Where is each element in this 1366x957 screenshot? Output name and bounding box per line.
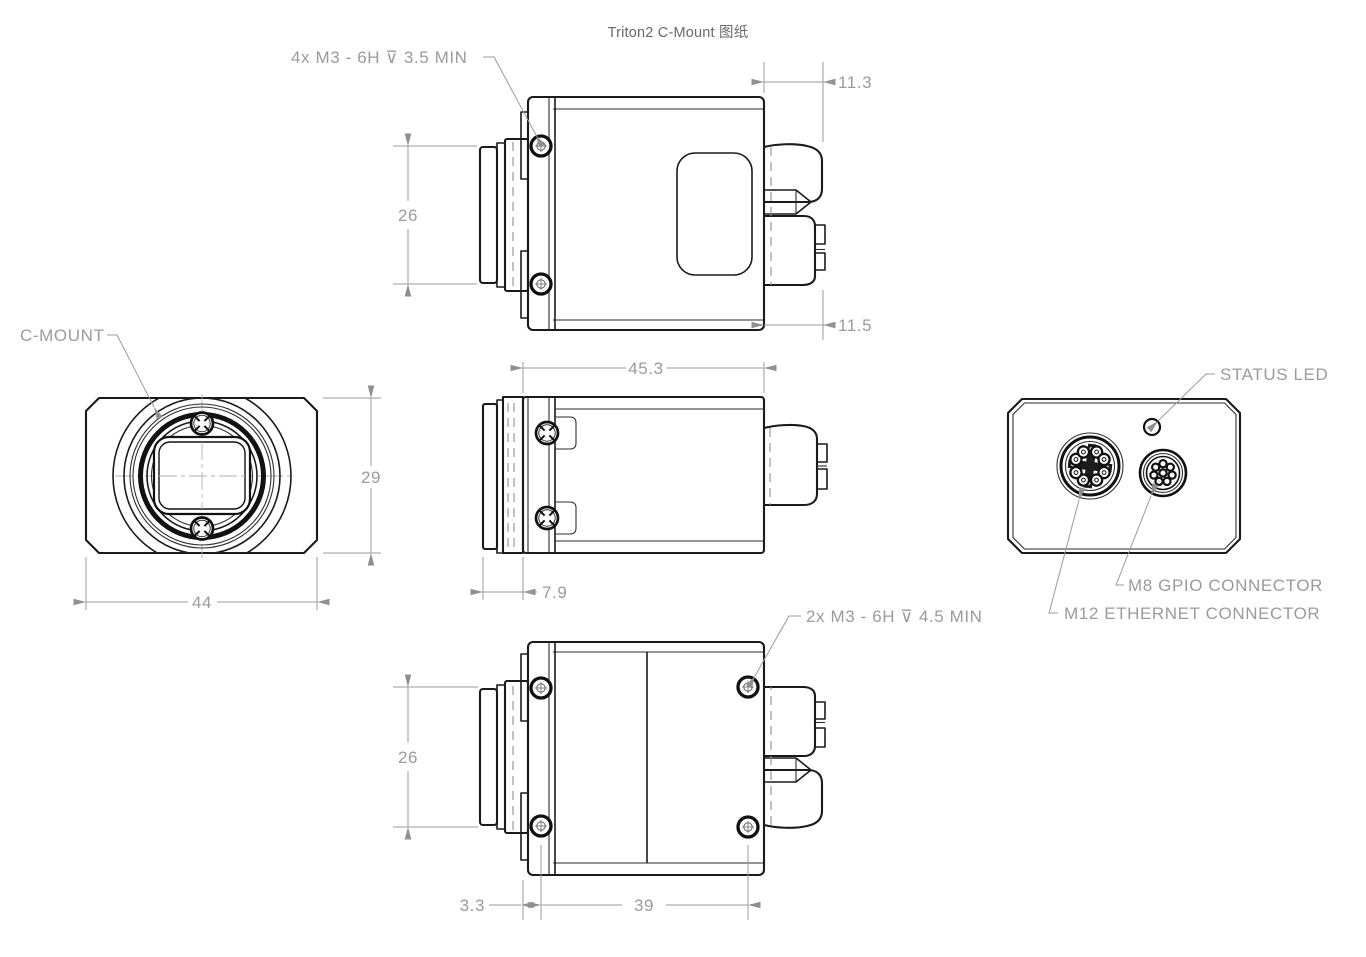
svg-text:26: 26: [398, 748, 418, 767]
phillips-screw: [536, 422, 558, 444]
svg-text:39: 39: [634, 896, 654, 915]
dim-side-45-3: 45.3: [523, 359, 764, 393]
dim-bottom-39: 39: [541, 845, 748, 920]
svg-text:3.3: 3.3: [460, 896, 485, 915]
bottom-view: 2x M3 - 6H ⊽ 4.5 MIN 26 3.3 39: [393, 607, 983, 920]
svg-text:44: 44: [192, 593, 212, 612]
svg-text:7.9: 7.9: [542, 583, 567, 602]
dim-side-7-9: 7.9: [483, 557, 567, 602]
dim-top-11-3: 11.3: [764, 62, 872, 142]
leader-c-mount: [107, 335, 154, 407]
drawing-title: Triton2 C-Mount 图纸: [608, 24, 749, 41]
label-recess: [677, 153, 752, 275]
svg-text:26: 26: [398, 206, 418, 225]
lens-barrel-side: [483, 397, 523, 553]
c-mount-label: C-MOUNT: [20, 326, 104, 345]
top-view-body: [480, 97, 825, 330]
m3-screw-hole: [738, 817, 758, 837]
drawing-canvas: Triton2 C-Mount 图纸 4x M3 - 6H ⊽ 3.5 MIN …: [0, 0, 1366, 957]
dim-top-26: 26: [393, 146, 477, 284]
svg-text:11.5: 11.5: [838, 316, 872, 335]
dim-bottom-26: 26: [393, 687, 478, 827]
m12-ethernet-label: M12 ETHERNET CONNECTOR: [1064, 604, 1320, 623]
m3-screw-hole: [738, 677, 758, 697]
leader-2x-m3: [755, 616, 801, 676]
leader-m8: [1116, 496, 1151, 585]
svg-text:45.3: 45.3: [628, 359, 664, 378]
svg-text:29: 29: [361, 468, 381, 487]
connector-block-side: [764, 425, 827, 505]
side-view: 45.3 7.9: [483, 359, 827, 602]
callout-2x-m3: 2x M3 - 6H ⊽ 4.5 MIN: [806, 607, 983, 626]
front-view: C-MOUNT 29 44: [20, 326, 381, 612]
rear-view: STATUS LED M8 GPIO CONNECTOR M12 ETHERNE…: [1008, 365, 1328, 623]
phillips-screw: [191, 413, 213, 435]
status-led-label: STATUS LED: [1220, 365, 1328, 384]
dim-front-44: 44: [86, 557, 317, 612]
bottom-view-body: [480, 642, 825, 875]
sensor-opening: [154, 437, 250, 514]
callout-4x-m3: 4x M3 - 6H ⊽ 3.5 MIN: [291, 48, 468, 67]
drawing-sheet: Triton2 C-Mount 图纸 4x M3 - 6H ⊽ 3.5 MIN …: [0, 0, 1366, 957]
phillips-screw: [536, 507, 558, 529]
dim-top-11-5: 11.5: [764, 290, 872, 340]
m12-connector: [1057, 433, 1123, 499]
rear-body-outline: [1008, 399, 1240, 553]
top-view: 4x M3 - 6H ⊽ 3.5 MIN 26 11.3 11.5: [291, 48, 872, 340]
side-body-outline: [523, 397, 764, 553]
m8-gpio-label: M8 GPIO CONNECTOR: [1128, 576, 1323, 595]
m8-connector: [1140, 450, 1186, 496]
status-led: [1144, 419, 1160, 435]
leader-m12: [1049, 500, 1079, 613]
phillips-screw: [191, 518, 213, 540]
leader-status-led: [1158, 374, 1215, 421]
svg-text:11.3: 11.3: [838, 73, 872, 92]
dim-front-29: 29: [323, 398, 381, 553]
